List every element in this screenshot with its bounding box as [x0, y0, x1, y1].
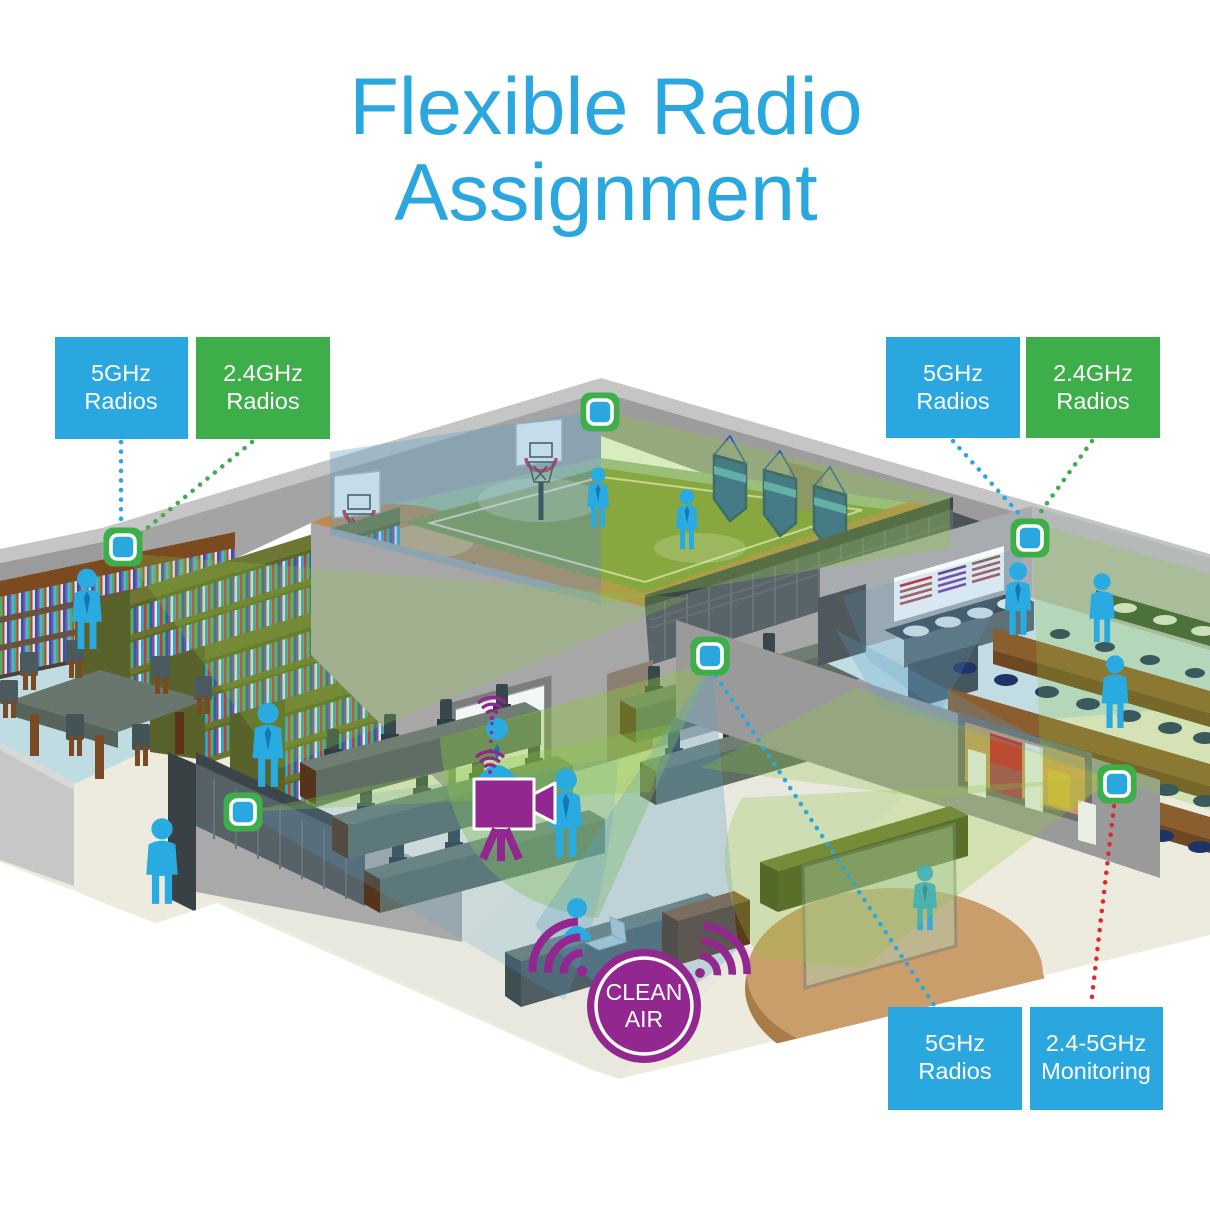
svg-text:Radios: Radios	[1056, 388, 1129, 414]
svg-text:5GHz: 5GHz	[925, 1030, 985, 1056]
svg-text:5GHz: 5GHz	[923, 360, 983, 386]
svg-text:Radios: Radios	[226, 388, 299, 414]
svg-text:Radios: Radios	[84, 388, 157, 414]
svg-text:2.4GHz: 2.4GHz	[223, 360, 303, 386]
svg-text:2.4GHz: 2.4GHz	[1053, 360, 1133, 386]
svg-text:2.4-5GHz: 2.4-5GHz	[1046, 1030, 1147, 1056]
svg-text:Monitoring: Monitoring	[1041, 1058, 1151, 1084]
svg-text:Flexible Radio: Flexible Radio	[349, 62, 862, 152]
svg-text:Radios: Radios	[918, 1058, 991, 1084]
svg-text:5GHz: 5GHz	[91, 360, 151, 386]
svg-text:CLEAN: CLEAN	[606, 979, 683, 1005]
svg-text:Radios: Radios	[916, 388, 989, 414]
svg-text:AIR: AIR	[625, 1006, 663, 1032]
svg-text:Assignment: Assignment	[394, 148, 817, 238]
